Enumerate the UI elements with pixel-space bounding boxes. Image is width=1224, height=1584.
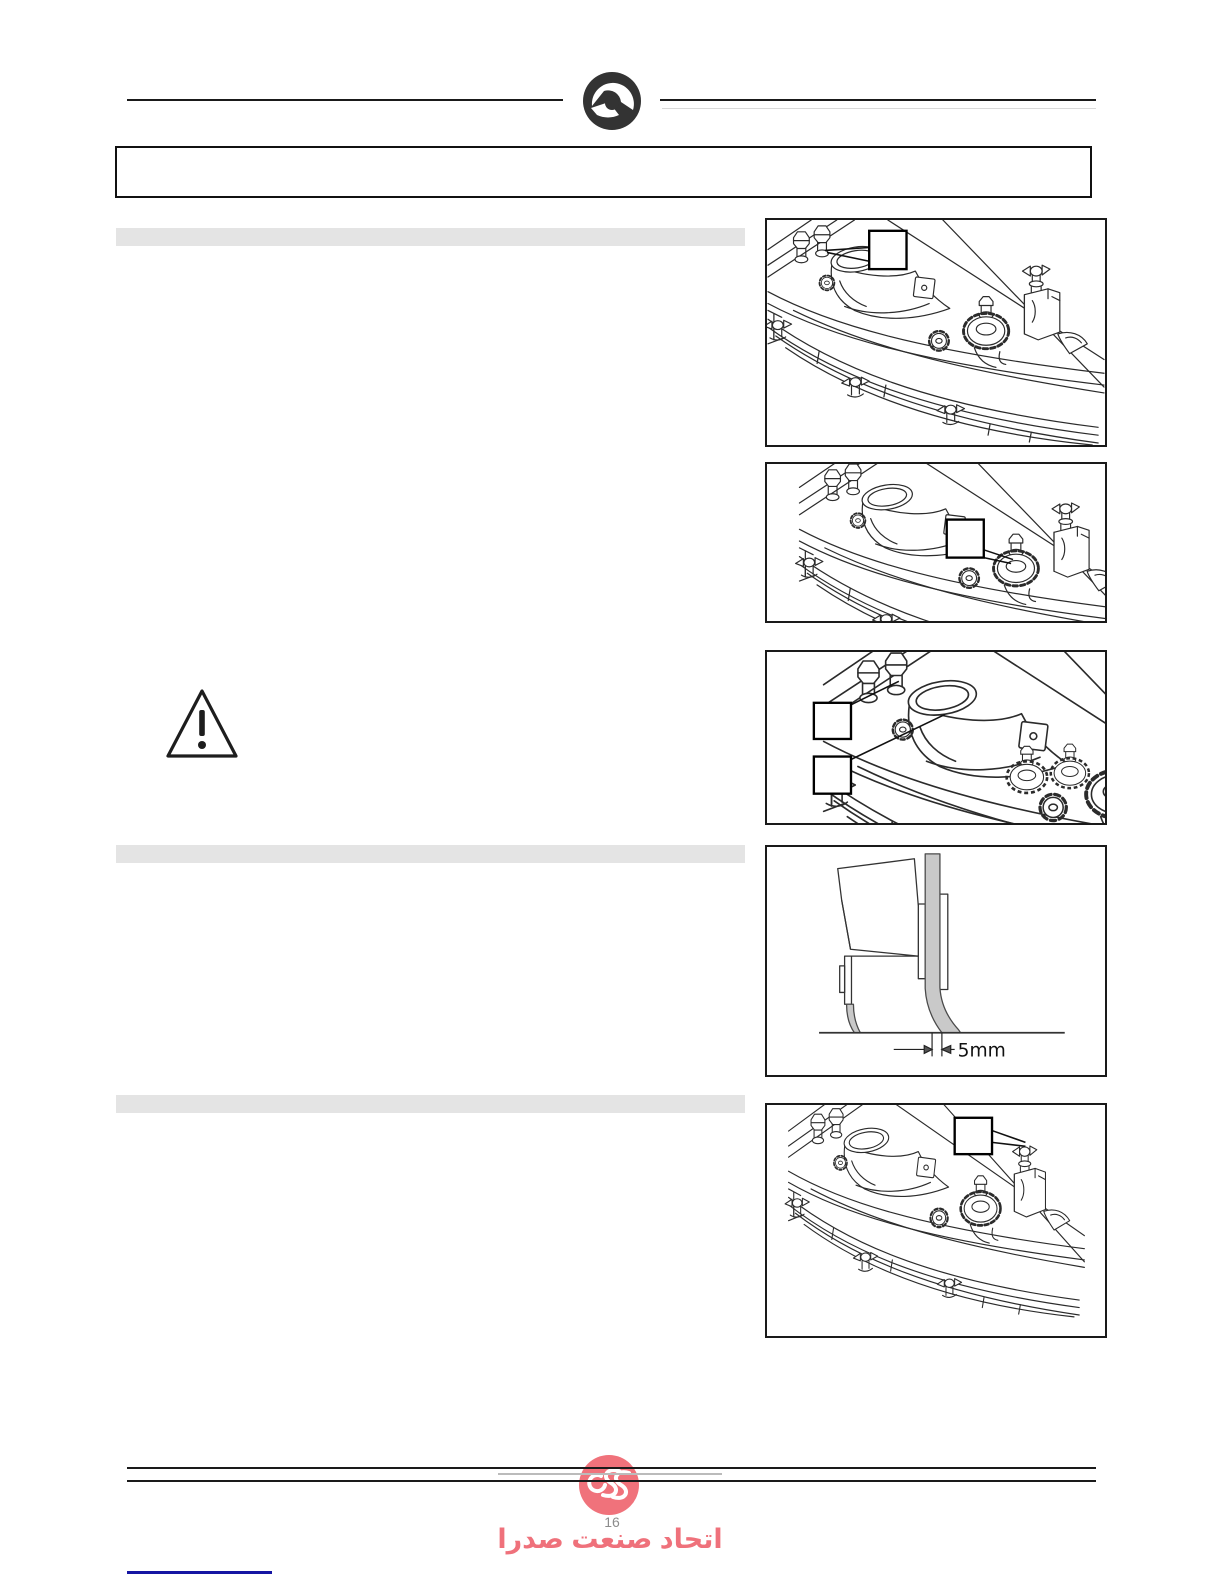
footer-rule-bottom [127, 1480, 1096, 1482]
header-rule-left [127, 99, 563, 101]
header-rule-right [660, 99, 1096, 101]
section-heading-bar-2 [116, 845, 745, 863]
footer-rule-middle [498, 1473, 722, 1475]
figure-squeegee-closeup [765, 650, 1107, 825]
figure-squeegee-top-view [765, 218, 1107, 447]
figure3-callout-box-2 [814, 757, 851, 794]
section-heading-bar-1 [116, 228, 745, 246]
figure3-callout-box-1 [814, 703, 851, 739]
footer-rule-top [127, 1467, 1096, 1469]
header-rule-shadow [662, 108, 1096, 109]
manual-page: { "header": { "logo_icon": "comac-brand-… [0, 0, 1224, 1584]
figure1-callout-box [869, 231, 906, 269]
warning-triangle-icon [163, 686, 241, 766]
comac-brand-mark-icon [583, 72, 641, 130]
footer-link-underline [127, 1571, 272, 1574]
section-heading-bar-3 [116, 1095, 745, 1113]
figure-blade-deflection: 5mm [765, 845, 1107, 1077]
title-box [115, 146, 1092, 198]
figure5-callout-box [955, 1118, 992, 1154]
blade-gap-dimension: 5mm [958, 1040, 1006, 1061]
ess-logo-icon [576, 1452, 642, 1518]
figure-squeegee-bracket-view [765, 1103, 1107, 1338]
figure2-callout-box [947, 520, 984, 558]
page-number: 16 [562, 1514, 662, 1530]
figure-squeegee-knob-view [765, 462, 1107, 623]
